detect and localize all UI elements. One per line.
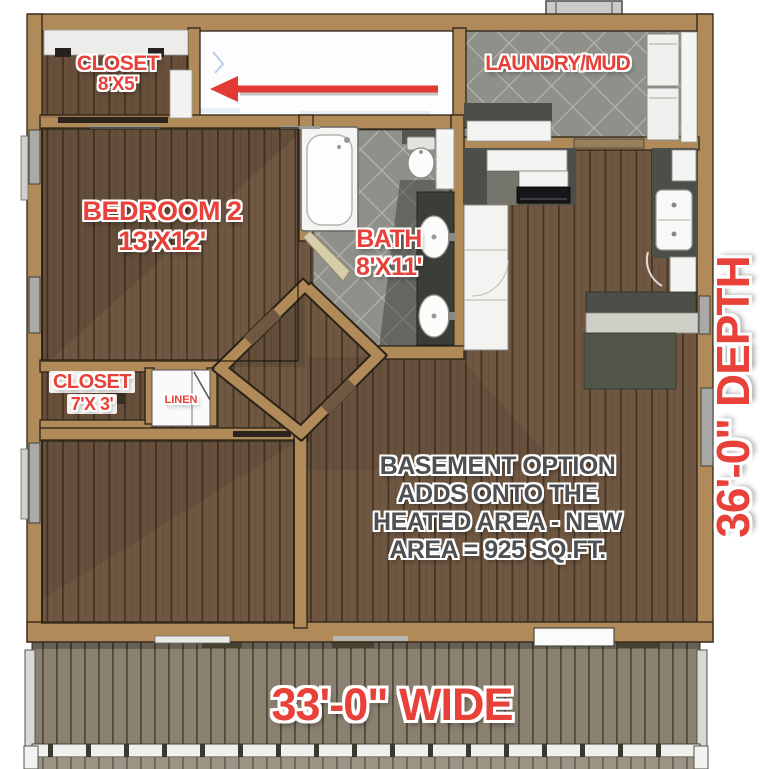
bath-size: 8'X11' [330,254,448,282]
basement-note-line2: ADDS ONTO THE [320,480,675,508]
closet-top-label: CLOSET 8'X5' [68,52,168,96]
closet-bottom-label: CLOSET 7'X 3' [40,371,144,415]
deck-entry-door [534,628,614,646]
linen-label: LINEN [152,394,210,406]
deck-railing [24,744,708,769]
basement-note-line4: AREA = 925 SQ.FT. [320,536,675,564]
bedroom2-name: BEDROOM 2 [57,197,267,227]
stove [517,187,570,203]
laundry-label: LAUNDRY/MUD [470,52,645,75]
closet-bottom-size: 7'X 3' [67,394,118,414]
basement-note-line1: BASEMENT OPTION [320,452,675,480]
width-dimension-label: 33'-0" WIDE [192,680,592,730]
bath-name: BATH [330,226,448,254]
depth-dimension-label: 36'-0" DEPTH [708,217,758,577]
kitchen-sink [656,190,692,250]
bedroom2-label: BEDROOM 2 13'X12' [57,197,267,256]
bath-label: BATH 8'X11' [330,226,448,281]
basement-note: BASEMENT OPTION ADDS ONTO THE HEATED ARE… [320,452,675,564]
bedroom2-size: 13'X12' [57,227,267,257]
closet-top-name: CLOSET [68,52,168,75]
basement-note-line3: HEATED AREA - NEW [320,508,675,536]
laundry-counter [464,103,552,141]
closet-top-size: 8'X5' [68,75,168,96]
stair-area [197,30,455,118]
closet-bottom-name: CLOSET [49,371,135,393]
floor-plan-image: CLOSET 8'X5' BEDROOM 2 13'X12' BATH 8'X1… [0,0,768,769]
